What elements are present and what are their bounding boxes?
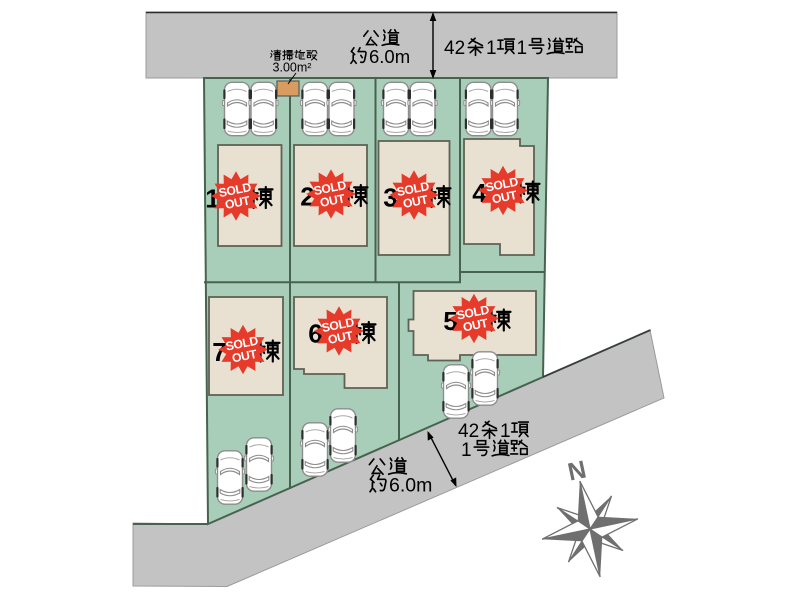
svg-text:6.0m: 6.0m <box>369 46 410 67</box>
svg-text:6.0m: 6.0m <box>389 475 432 497</box>
svg-text:42: 42 <box>458 421 479 442</box>
svg-text:3.00m²: 3.00m² <box>273 61 312 75</box>
svg-text:1: 1 <box>486 38 497 59</box>
svg-text:1: 1 <box>517 38 528 59</box>
svg-text:42: 42 <box>444 38 465 59</box>
svg-text:1: 1 <box>461 440 472 461</box>
svg-text:1: 1 <box>500 421 511 442</box>
